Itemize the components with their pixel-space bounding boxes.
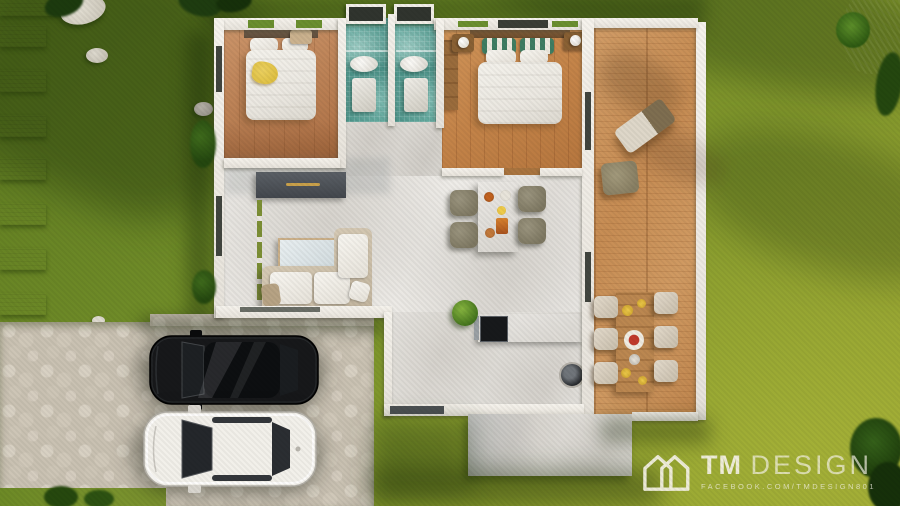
window-planter <box>552 21 578 27</box>
paver-slab <box>0 115 46 137</box>
bedroom2-south-wall <box>540 168 582 176</box>
windshield <box>182 420 212 478</box>
dining-chair <box>518 186 546 212</box>
windshield <box>182 342 204 398</box>
east-wall-window <box>585 92 591 150</box>
paver-slab <box>0 25 46 47</box>
watermark-subtitle: FACEBOOK.COM/TMDESIGN801 <box>701 482 876 491</box>
outdoor-plate <box>624 330 644 350</box>
wing-west-wall <box>384 312 392 416</box>
side-window-strip <box>212 417 272 423</box>
north-wall-bedroom1 <box>216 18 344 30</box>
grass-tuft <box>84 490 114 506</box>
paver-slab <box>0 158 46 180</box>
watermark-text: TM DESIGN FACEBOOK.COM/TMDESIGN801 <box>701 452 876 491</box>
outdoor-chair <box>654 292 678 314</box>
paver-slab <box>0 248 46 270</box>
bathroom1-toilet <box>350 56 378 72</box>
bed1-duvet <box>246 50 316 120</box>
fruit-bowl <box>638 376 647 385</box>
bedroom2-door-threshold <box>504 168 540 175</box>
paver-slab <box>0 70 46 92</box>
outdoor-chair <box>654 326 678 348</box>
bathroom2-window <box>394 4 434 24</box>
sofa-cushion <box>338 234 368 278</box>
trunk-emblem <box>296 447 301 452</box>
bedside-lamp <box>570 35 581 46</box>
bedroom2-south-wall <box>442 168 504 176</box>
bed2-duvet <box>478 62 562 124</box>
shrub <box>190 120 216 168</box>
side-mirror <box>190 330 202 337</box>
bathroom-divider-wall <box>388 14 395 126</box>
car-body <box>144 412 316 486</box>
cooktop <box>480 316 508 342</box>
bathroom1-window <box>346 4 386 24</box>
plant-top-right <box>836 12 870 48</box>
black-car <box>146 328 322 412</box>
paver-slab <box>0 293 46 315</box>
fruit-bowl <box>621 368 631 378</box>
aerial-house-render: TM DESIGN FACEBOOK.COM/TMDESIGN801 <box>0 0 900 506</box>
east-wall-door <box>585 252 591 302</box>
white-car <box>140 404 320 494</box>
dining-chair <box>450 190 478 216</box>
brand-name: TM DESIGN <box>701 452 876 479</box>
side-window-strip <box>212 475 272 481</box>
bathroom1-shower-tray <box>352 78 376 112</box>
serving-bowl <box>629 354 640 365</box>
window-planter <box>296 20 322 28</box>
palm-frond <box>215 0 254 15</box>
deck-north-trim <box>586 18 698 28</box>
outdoor-chair <box>594 362 618 384</box>
deck-fascia-bottom <box>632 412 698 421</box>
rear-window <box>272 422 290 476</box>
wall-bedroom1-bath <box>338 18 346 168</box>
west-wall-window <box>216 196 222 256</box>
dining-chair <box>450 222 478 248</box>
sofa-throw <box>261 283 282 307</box>
deck-fascia-right <box>696 22 706 420</box>
bathroom2-glass-divider <box>396 50 438 52</box>
watermark: TM DESIGN FACEBOOK.COM/TMDESIGN801 <box>641 450 876 492</box>
fruit-bowl <box>622 305 633 316</box>
wall-bath-bedroom2 <box>436 18 444 128</box>
potted-plant <box>452 300 478 326</box>
window-planter <box>458 21 488 27</box>
rear-window <box>280 344 298 396</box>
entry-porch <box>468 414 632 476</box>
bedside-lamp <box>458 37 469 48</box>
serving-dish <box>497 206 506 215</box>
tree-shadow-band-right <box>677 100 900 310</box>
east-wall <box>582 18 594 414</box>
fruit-bowl <box>637 299 646 308</box>
paver-slab <box>0 203 46 225</box>
black-car-graphic <box>146 328 322 412</box>
brand-light: DESIGN <box>750 450 872 480</box>
bed1-tray <box>290 30 312 44</box>
outdoor-chair <box>594 328 618 350</box>
dining-table <box>478 182 518 252</box>
dinner-plate <box>485 228 495 238</box>
bathroom2-shower-tray <box>404 78 428 112</box>
deck-armchair <box>600 160 639 196</box>
garden-stone <box>194 102 213 116</box>
outdoor-chair <box>594 296 618 318</box>
double-house-outline-icon <box>641 450 693 492</box>
bedroom1-south-wall <box>224 158 340 168</box>
wing-shadow-on-grass <box>372 420 472 490</box>
dinner-plate <box>484 192 494 202</box>
dining-chair <box>518 218 546 244</box>
tv-console-handle <box>286 183 320 186</box>
hallway-floor <box>340 118 445 176</box>
bathroom2-toilet <box>400 56 428 72</box>
side-mirror <box>188 485 201 493</box>
sliding-door-track <box>390 406 444 414</box>
side-mirror <box>188 405 201 413</box>
outdoor-chair <box>654 360 678 382</box>
dinner-plate <box>500 190 511 201</box>
living-south-window <box>240 307 320 312</box>
window-planter <box>248 20 274 28</box>
bathroom1-glass-divider <box>346 50 388 52</box>
grass-tuft <box>44 486 78 506</box>
garden-stone <box>86 48 108 63</box>
brand-bold: TM <box>701 450 742 480</box>
bedroom2-clerestory-window <box>498 20 548 28</box>
shrub <box>192 270 216 304</box>
white-car-graphic <box>140 404 320 494</box>
west-wall-window <box>216 46 222 92</box>
table-runner-dish <box>496 218 508 234</box>
